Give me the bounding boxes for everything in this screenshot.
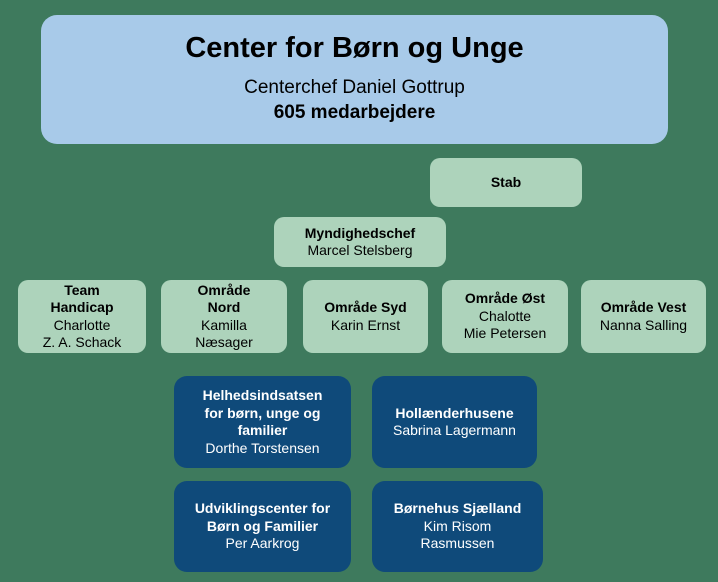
unit-title: Hollænderhusene <box>395 405 513 423</box>
area-leader-name: Kamilla Næsager <box>195 317 253 352</box>
org-box-team-handicap: Team Handicap Charlotte Z. A. Schack <box>18 280 146 353</box>
center-chief-name: Centerchef Daniel Gottrup <box>244 76 465 101</box>
org-box-center: Center for Børn og Unge Centerchef Danie… <box>41 15 668 144</box>
unit-title: Børnehus Sjælland <box>394 500 522 518</box>
center-headcount: 605 medarbejdere <box>274 101 436 126</box>
myndighedschef-name: Marcel Stelsberg <box>307 242 412 260</box>
unit-leader-name: Per Aarkrog <box>226 535 300 553</box>
org-box-omraade-nord: Område Nord Kamilla Næsager <box>161 280 287 353</box>
unit-leader-name: Dorthe Torstensen <box>205 440 319 458</box>
org-box-omraade-vest: Område Vest Nanna Salling <box>581 280 706 353</box>
org-box-stab: Stab <box>430 158 582 207</box>
area-title: Område Vest <box>601 299 687 317</box>
org-box-boernehus-sjaelland: Børnehus Sjælland Kim Risom Rasmussen <box>372 481 543 572</box>
area-leader-name: Karin Ernst <box>331 317 400 335</box>
area-title: Område Syd <box>324 299 406 317</box>
org-box-omraade-syd: Område Syd Karin Ernst <box>303 280 428 353</box>
org-box-hollaenderhusene: Hollænderhusene Sabrina Lagermann <box>372 376 537 468</box>
org-box-omraade-oest: Område Øst Chalotte Mie Petersen <box>442 280 568 353</box>
area-title: Team Handicap <box>50 282 113 317</box>
unit-leader-name: Sabrina Lagermann <box>393 422 516 440</box>
org-chart: Center for Børn og Unge Centerchef Danie… <box>0 0 718 582</box>
center-title: Center for Børn og Unge <box>185 33 523 65</box>
myndighedschef-title: Myndighedschef <box>305 225 415 243</box>
unit-leader-name: Kim Risom Rasmussen <box>421 518 495 553</box>
area-title: Område Øst <box>465 290 545 308</box>
org-box-udviklingscenter: Udviklingscenter for Børn og Familier Pe… <box>174 481 351 572</box>
area-leader-name: Charlotte Z. A. Schack <box>43 317 122 352</box>
area-leader-name: Nanna Salling <box>600 317 687 335</box>
org-box-helhedsindsatsen: Helhedsindsatsen for børn, unge og famil… <box>174 376 351 468</box>
org-box-myndighedschef: Myndighedschef Marcel Stelsberg <box>274 217 446 267</box>
area-title: Område Nord <box>198 282 251 317</box>
stab-title: Stab <box>491 174 521 192</box>
unit-title: Udviklingscenter for Børn og Familier <box>195 500 330 535</box>
unit-title: Helhedsindsatsen for børn, unge og famil… <box>203 387 323 440</box>
area-leader-name: Chalotte Mie Petersen <box>464 308 546 343</box>
